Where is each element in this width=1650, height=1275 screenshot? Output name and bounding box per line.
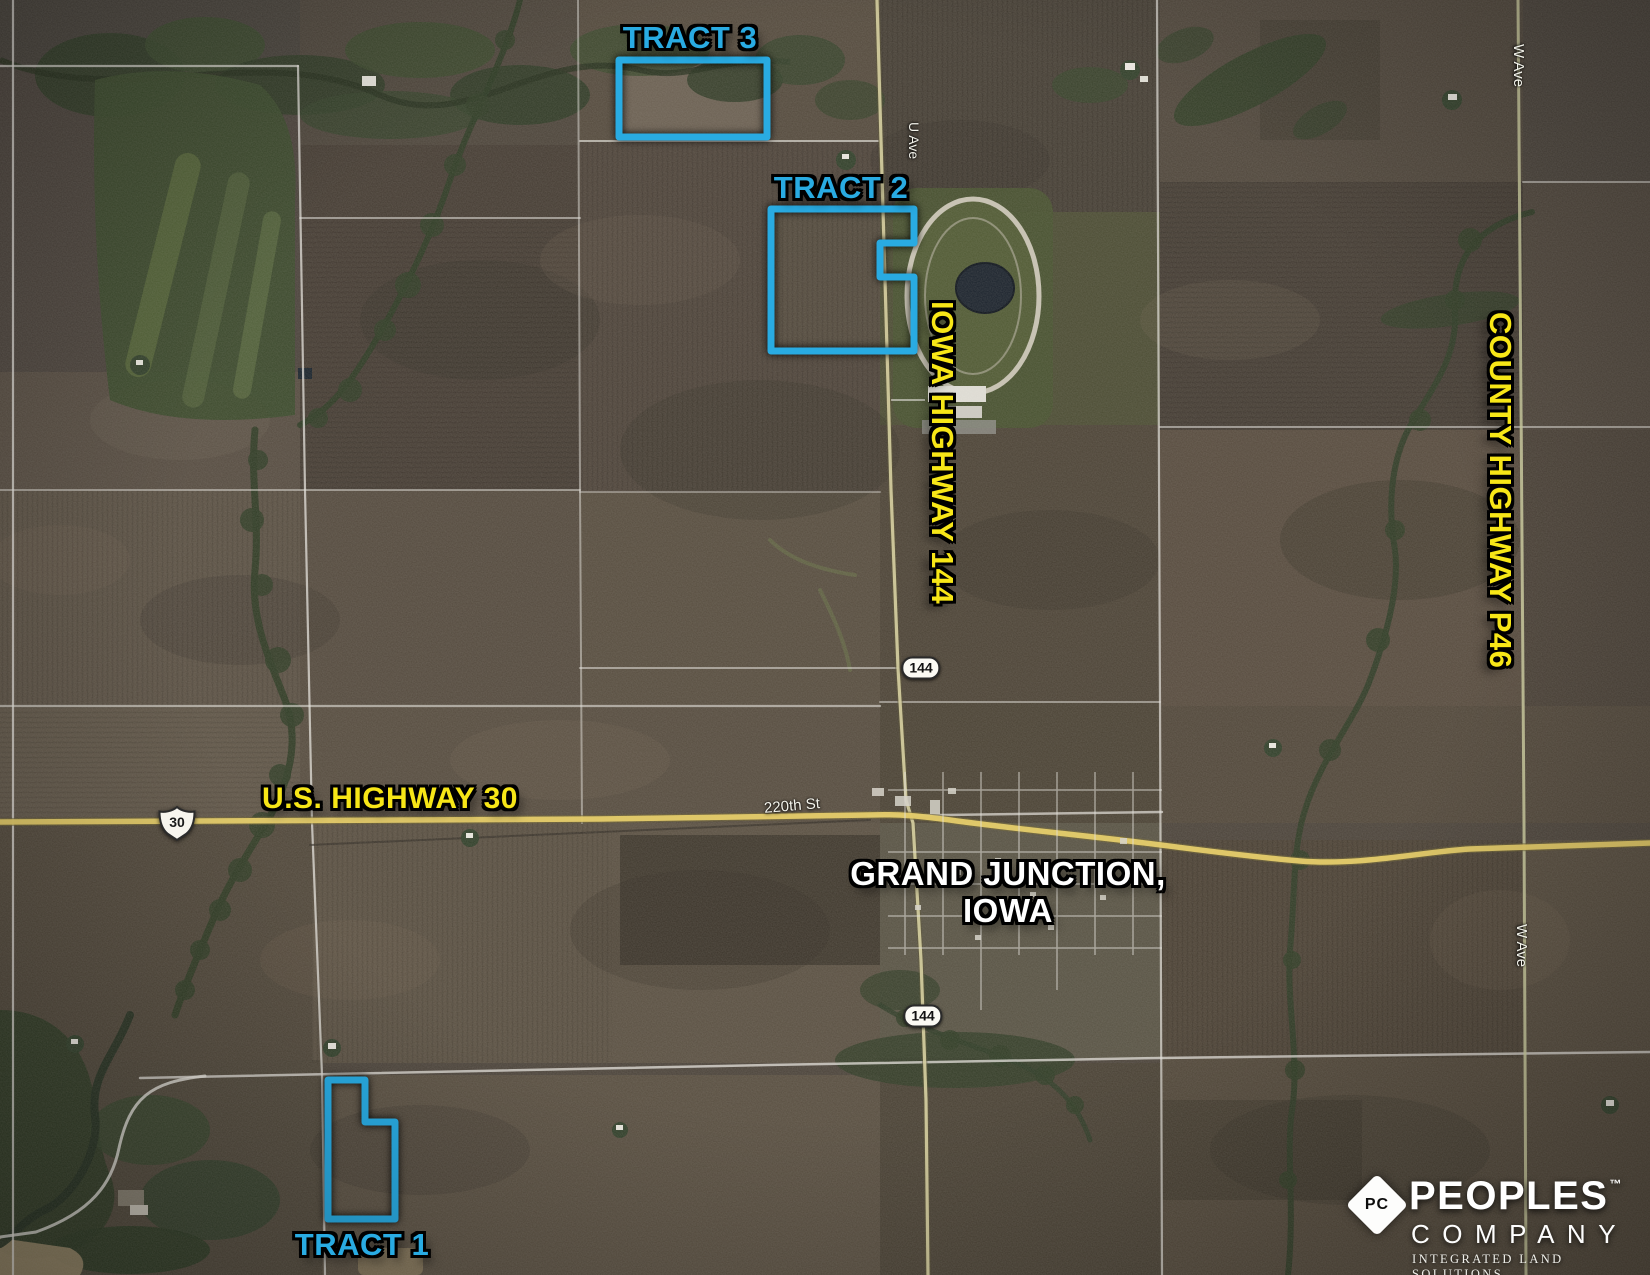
- peoples-company-logo: PC PEOPLES™ COMPANY INTEGRATED LAND SOLU…: [1337, 1172, 1637, 1267]
- logo-company-word: COMPANY: [1411, 1219, 1628, 1250]
- logo-name: PEOPLES™: [1409, 1174, 1622, 1219]
- satellite-map: TRACT 3 TRACT 2 TRACT 1 U.S. HIGHWAY 30 …: [0, 0, 1650, 1275]
- tract-1-label: TRACT 1: [295, 1227, 429, 1263]
- iowa-144-shield-north: 144: [901, 657, 940, 680]
- city-label-line2: IOWA: [850, 892, 1166, 929]
- street-label-w-ave-south: W Ave: [1513, 924, 1530, 967]
- us-30-shield-number: 30: [169, 814, 185, 830]
- iowa-highway-144-label: IOWA HIGHWAY 144: [924, 301, 960, 604]
- street-label-u-ave: U Ave: [906, 122, 922, 159]
- logo-trademark: ™: [1609, 1177, 1623, 1191]
- city-label: GRAND JUNCTION, IOWA: [850, 855, 1166, 930]
- logo-name-text: PEOPLES: [1409, 1174, 1608, 1218]
- us-30-shield: 30: [157, 805, 197, 841]
- city-label-line1: GRAND JUNCTION,: [850, 855, 1166, 892]
- pc-diamond-icon: PC: [1346, 1174, 1408, 1236]
- tract-3-label: TRACT 3: [623, 20, 757, 56]
- county-highway-p46-label: COUNTY HIGHWAY P46: [1482, 312, 1518, 668]
- us-highway-30-label: U.S. HIGHWAY 30: [262, 782, 518, 816]
- pc-monogram: PC: [1355, 1183, 1399, 1227]
- street-label-w-ave-north: W Ave: [1510, 44, 1527, 87]
- tract-2-label: TRACT 2: [774, 170, 908, 206]
- logo-tagline: INTEGRATED LAND SOLUTIONS: [1412, 1252, 1637, 1275]
- iowa-144-shield-south: 144: [903, 1005, 942, 1028]
